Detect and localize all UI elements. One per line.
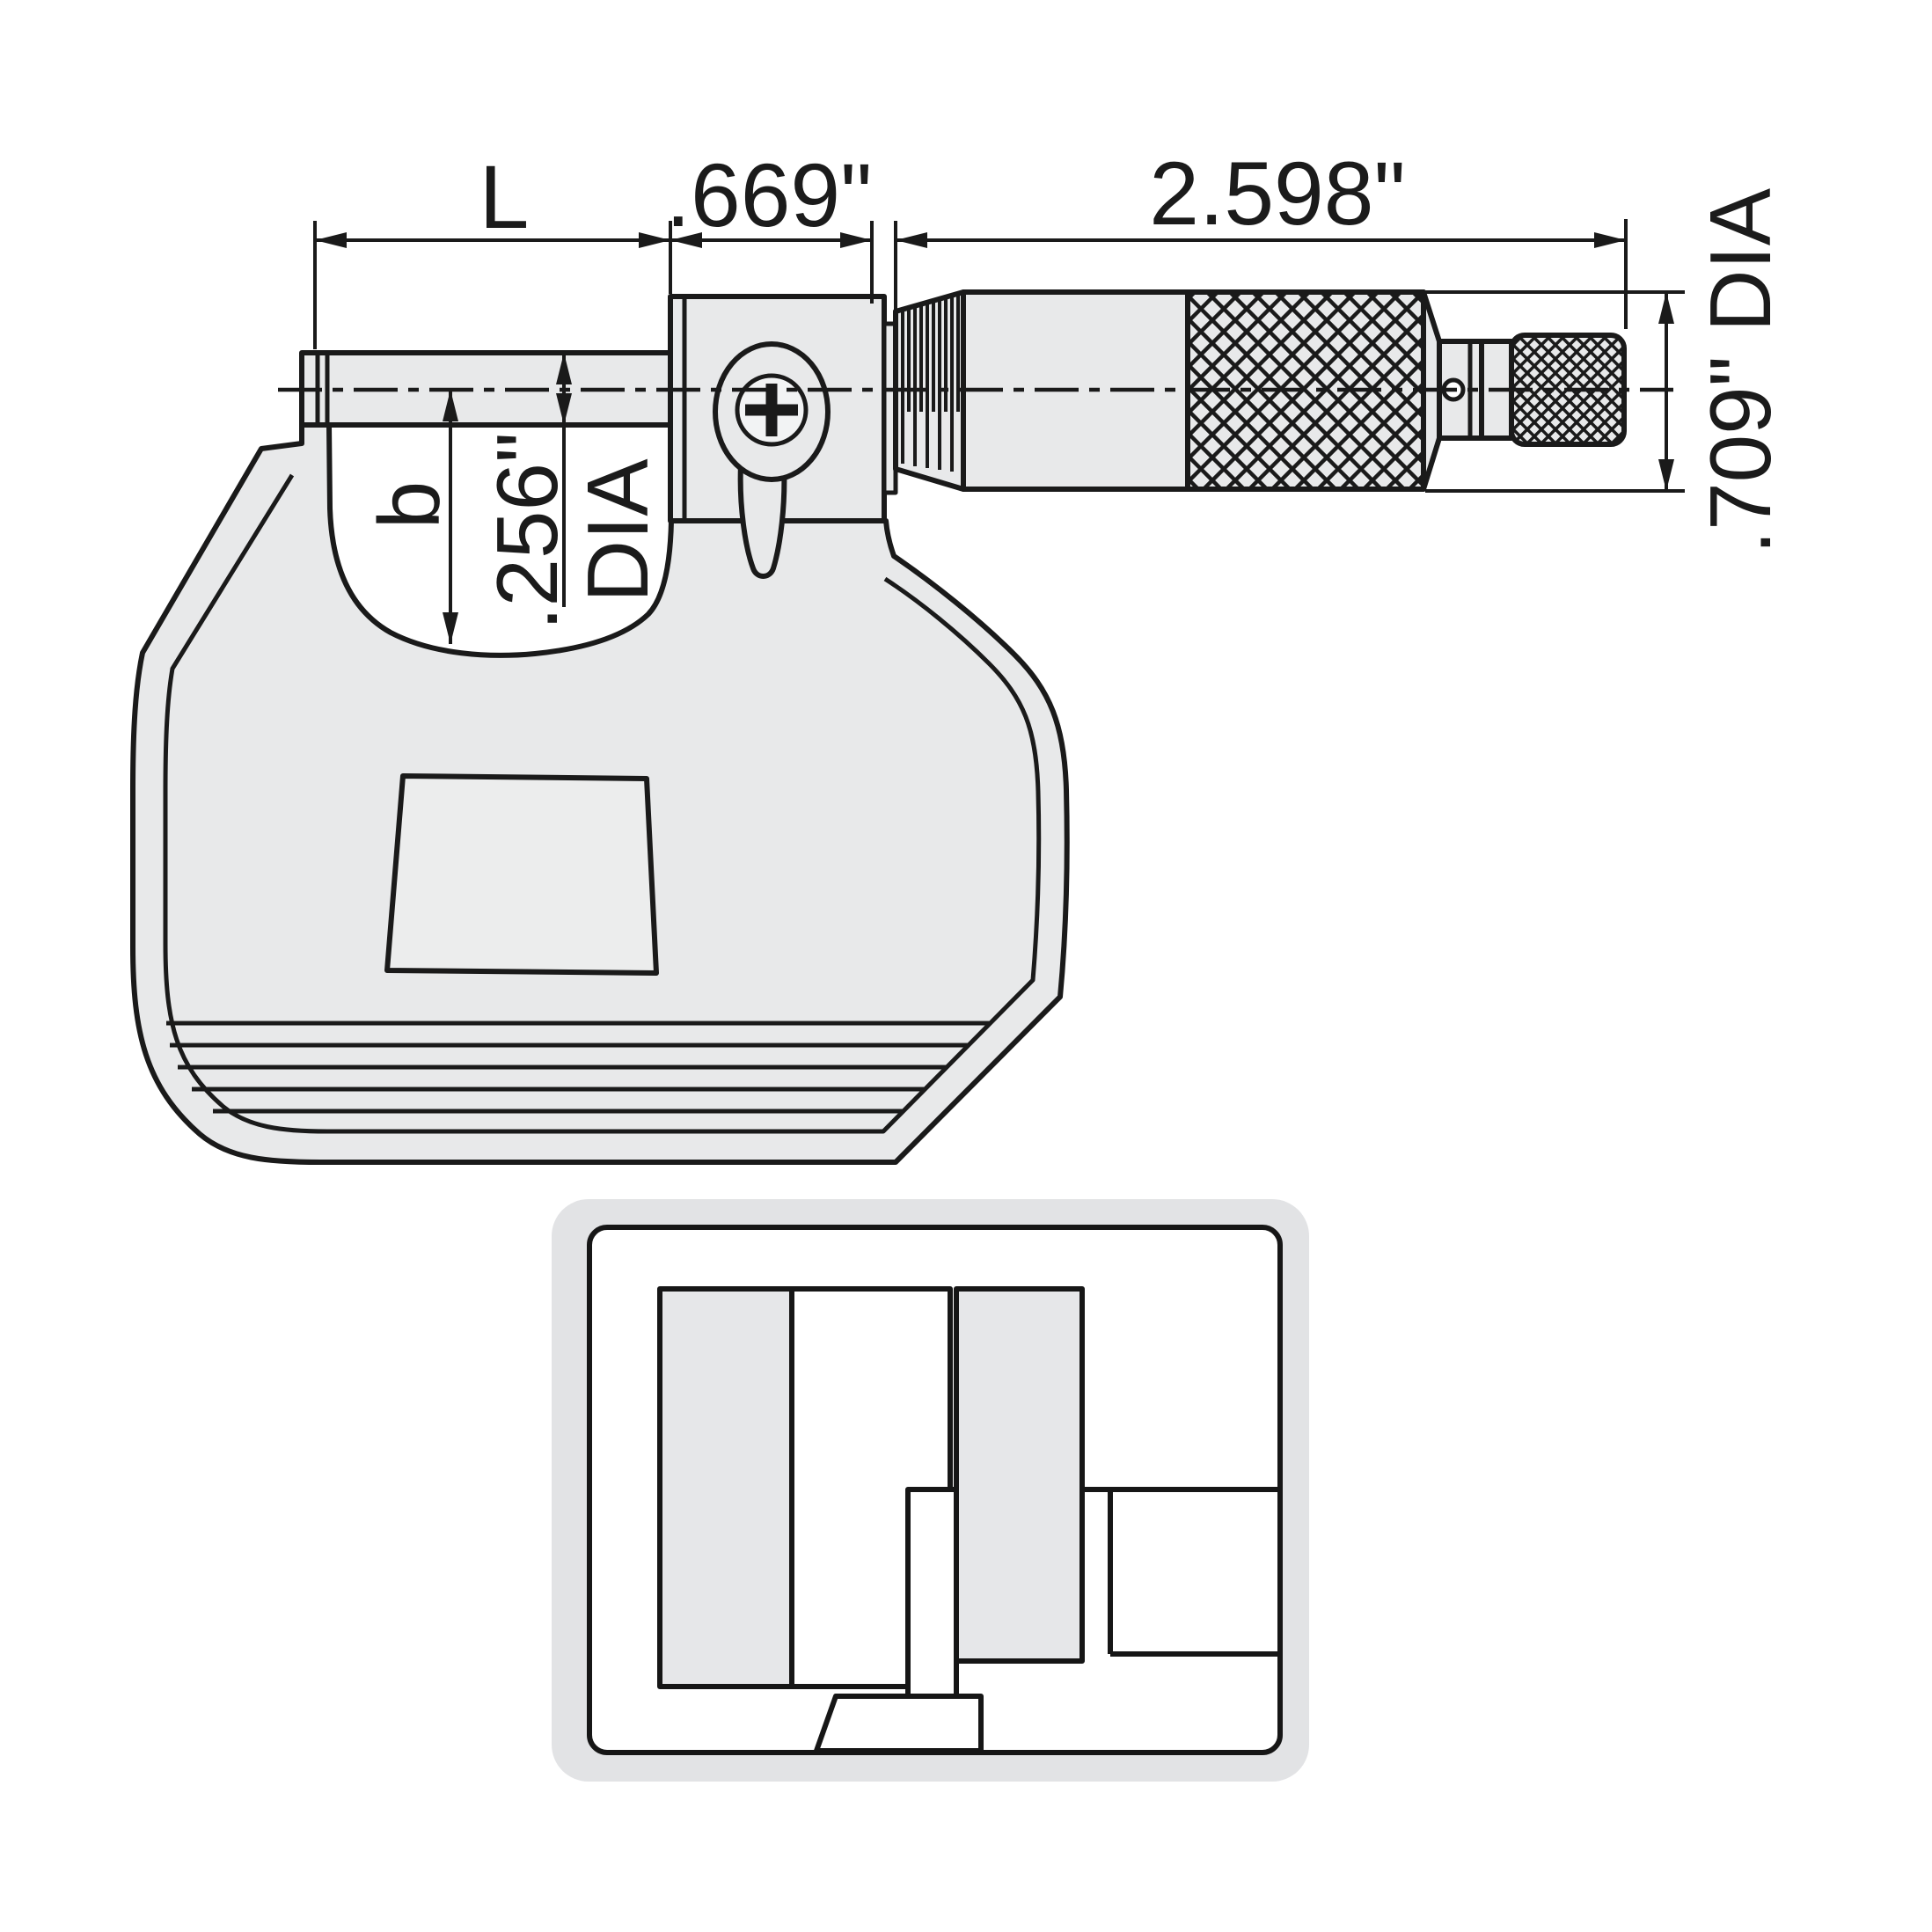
dim-label-256-dia: DIA bbox=[569, 458, 666, 603]
micrometer-side-view: L .669" 2.598" b .256" DIA .709" DIA bbox=[133, 143, 1789, 1162]
drawing-canvas: L .669" 2.598" b .256" DIA .709" DIA bbox=[0, 0, 1932, 1932]
dim-label-L: L bbox=[479, 147, 530, 247]
dim-label-669: .669" bbox=[666, 145, 873, 245]
frame-label-plate bbox=[387, 776, 656, 973]
dim-label-709-dia: .709" DIA bbox=[1692, 187, 1789, 554]
lock-ring bbox=[715, 344, 828, 479]
micrometer-blade bbox=[816, 1696, 981, 1751]
dim-label-2598: 2.598" bbox=[1149, 143, 1405, 244]
dim-label-b: b bbox=[361, 481, 457, 530]
dim-label-256: .256" bbox=[479, 432, 575, 631]
left-boss bbox=[660, 1289, 792, 1687]
right-boss bbox=[956, 1289, 1082, 1661]
application-cross-section bbox=[552, 1199, 1309, 1782]
measured-rib bbox=[908, 1489, 956, 1696]
